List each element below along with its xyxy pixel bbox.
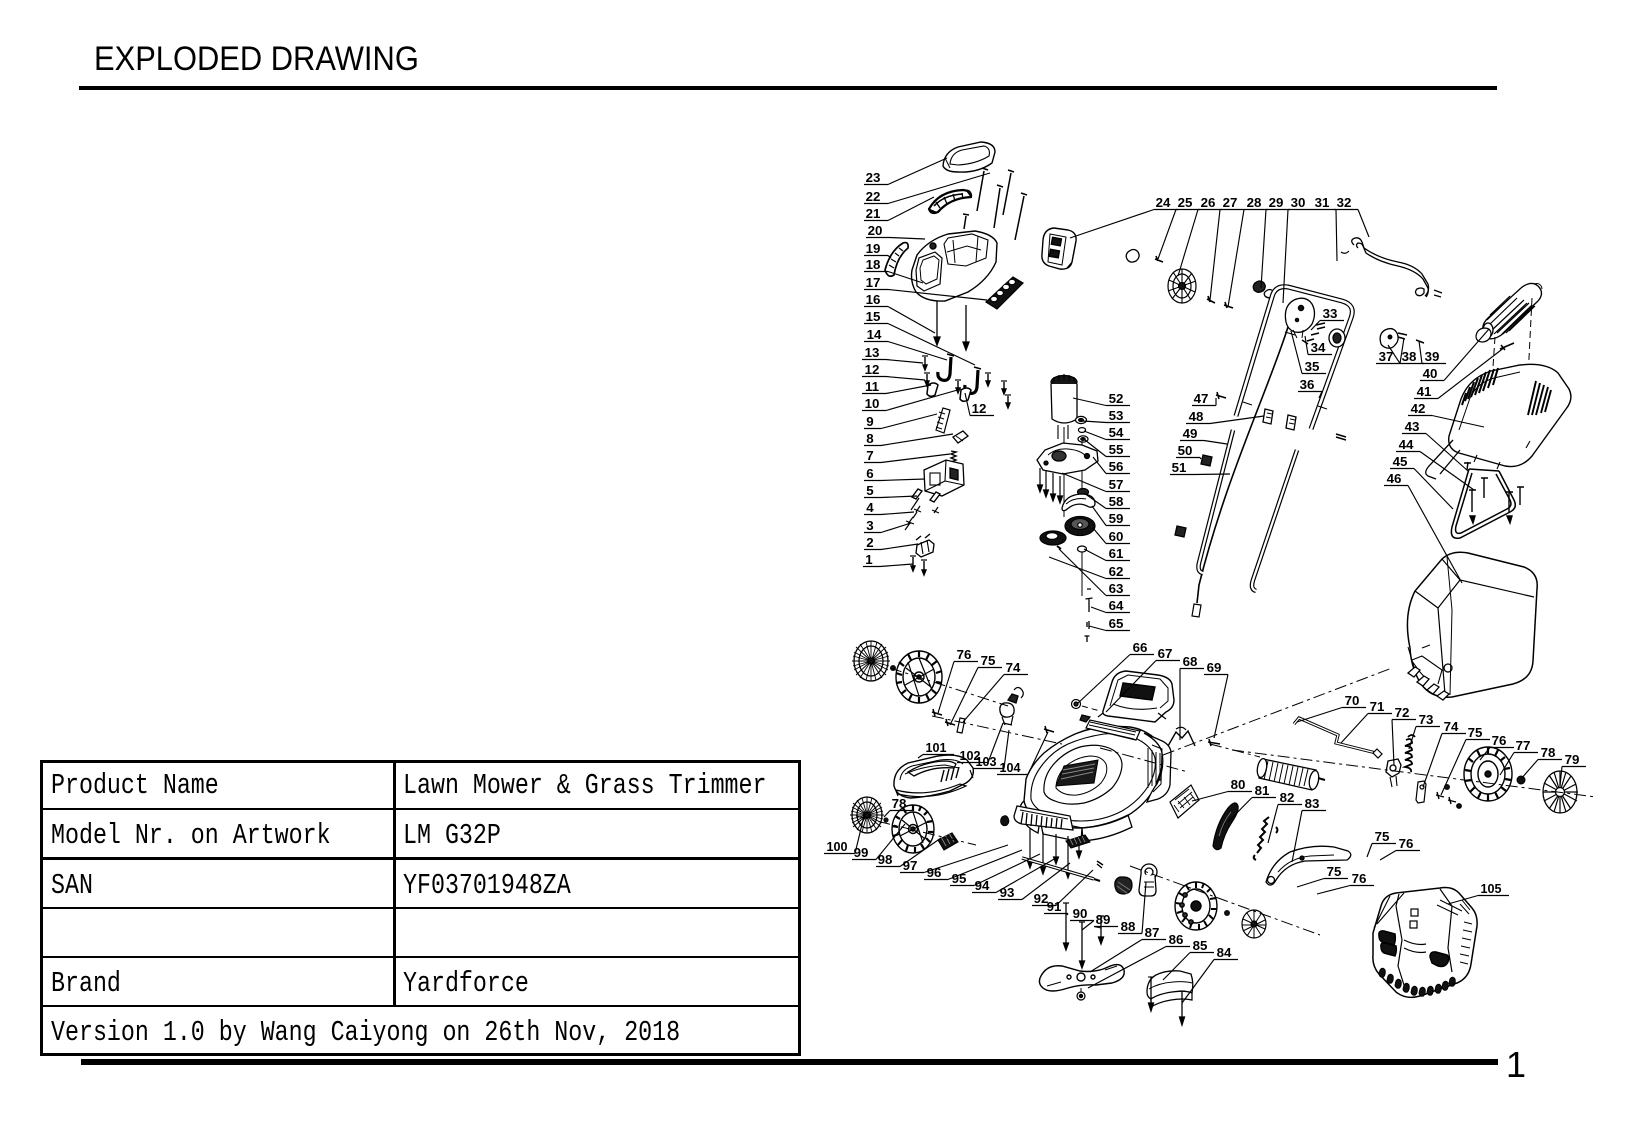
svg-text:64: 64 xyxy=(1109,598,1124,613)
svg-text:95: 95 xyxy=(952,871,967,886)
svg-text:78: 78 xyxy=(1541,745,1556,760)
svg-text:90: 90 xyxy=(1073,906,1088,921)
svg-text:5: 5 xyxy=(866,483,874,498)
svg-text:89: 89 xyxy=(1096,912,1111,927)
svg-text:76: 76 xyxy=(1492,733,1507,748)
svg-text:4: 4 xyxy=(866,500,874,515)
svg-text:39: 39 xyxy=(1425,349,1440,364)
svg-text:69: 69 xyxy=(1207,660,1222,675)
svg-text:41: 41 xyxy=(1417,384,1432,399)
svg-text:35: 35 xyxy=(1305,359,1320,374)
svg-text:56: 56 xyxy=(1109,459,1124,474)
svg-text:83: 83 xyxy=(1305,796,1320,811)
svg-text:62: 62 xyxy=(1109,564,1124,579)
svg-text:33: 33 xyxy=(1323,306,1338,321)
svg-text:60: 60 xyxy=(1109,529,1124,544)
svg-text:38: 38 xyxy=(1402,349,1417,364)
svg-text:96: 96 xyxy=(927,865,942,880)
svg-text:82: 82 xyxy=(1280,790,1295,805)
svg-text:80: 80 xyxy=(1231,777,1246,792)
svg-text:76: 76 xyxy=(1352,871,1367,886)
svg-text:105: 105 xyxy=(1481,881,1503,896)
svg-text:71: 71 xyxy=(1370,699,1385,714)
svg-text:13: 13 xyxy=(865,345,880,360)
svg-text:52: 52 xyxy=(1109,391,1124,406)
svg-text:19: 19 xyxy=(866,241,881,256)
svg-text:44: 44 xyxy=(1399,437,1414,452)
svg-text:75: 75 xyxy=(1327,864,1342,879)
svg-text:68: 68 xyxy=(1183,654,1198,669)
svg-text:84: 84 xyxy=(1217,945,1232,960)
svg-text:97: 97 xyxy=(903,858,918,873)
svg-text:76: 76 xyxy=(1399,836,1414,851)
svg-text:2: 2 xyxy=(866,535,873,550)
svg-text:73: 73 xyxy=(1419,712,1434,727)
svg-text:100: 100 xyxy=(827,839,848,854)
svg-text:48: 48 xyxy=(1189,409,1204,424)
svg-text:47: 47 xyxy=(1194,391,1209,406)
svg-text:10: 10 xyxy=(865,396,880,411)
svg-text:75: 75 xyxy=(1468,725,1483,740)
svg-text:57: 57 xyxy=(1109,477,1124,492)
svg-text:63: 63 xyxy=(1109,581,1124,596)
svg-text:86: 86 xyxy=(1169,932,1184,947)
svg-text:36: 36 xyxy=(1300,377,1315,392)
svg-text:8: 8 xyxy=(866,431,873,446)
svg-text:1: 1 xyxy=(865,552,873,567)
svg-text:20: 20 xyxy=(868,223,883,238)
svg-text:59: 59 xyxy=(1109,511,1124,526)
svg-text:21: 21 xyxy=(866,206,881,221)
svg-text:40: 40 xyxy=(1423,366,1438,381)
svg-text:75: 75 xyxy=(1375,829,1390,844)
svg-text:67: 67 xyxy=(1158,646,1173,661)
svg-text:3: 3 xyxy=(866,518,873,533)
svg-text:23: 23 xyxy=(866,170,881,185)
svg-text:55: 55 xyxy=(1109,442,1124,457)
svg-text:58: 58 xyxy=(1109,494,1124,509)
svg-text:65: 65 xyxy=(1109,616,1124,631)
svg-text:88: 88 xyxy=(1121,919,1136,934)
svg-text:27: 27 xyxy=(1223,195,1238,210)
svg-text:29: 29 xyxy=(1269,195,1284,210)
svg-text:6: 6 xyxy=(866,466,873,481)
svg-text:12: 12 xyxy=(972,401,987,416)
svg-text:7: 7 xyxy=(866,448,873,463)
svg-text:31: 31 xyxy=(1315,195,1330,210)
svg-text:74: 74 xyxy=(1444,719,1459,734)
svg-text:93: 93 xyxy=(1000,885,1015,900)
svg-text:54: 54 xyxy=(1109,425,1124,440)
svg-text:50: 50 xyxy=(1178,443,1193,458)
svg-text:75: 75 xyxy=(981,653,996,668)
svg-text:99: 99 xyxy=(854,845,869,860)
svg-text:30: 30 xyxy=(1291,195,1306,210)
svg-text:28: 28 xyxy=(1247,195,1262,210)
svg-text:70: 70 xyxy=(1345,693,1360,708)
svg-text:11: 11 xyxy=(865,379,880,394)
svg-text:34: 34 xyxy=(1311,340,1326,355)
svg-text:91: 91 xyxy=(1047,899,1062,914)
svg-text:77: 77 xyxy=(1516,738,1531,753)
svg-text:15: 15 xyxy=(866,309,881,324)
svg-text:49: 49 xyxy=(1183,426,1198,441)
svg-text:14: 14 xyxy=(867,327,882,342)
svg-text:9: 9 xyxy=(866,414,873,429)
svg-text:85: 85 xyxy=(1193,938,1208,953)
svg-text:104: 104 xyxy=(1000,760,1022,775)
svg-text:66: 66 xyxy=(1133,640,1148,655)
svg-text:53: 53 xyxy=(1109,408,1124,423)
svg-text:101: 101 xyxy=(926,740,948,755)
svg-text:81: 81 xyxy=(1255,783,1270,798)
svg-text:22: 22 xyxy=(866,189,881,204)
svg-text:12: 12 xyxy=(865,362,880,377)
svg-text:72: 72 xyxy=(1395,705,1410,720)
svg-text:46: 46 xyxy=(1387,471,1402,486)
svg-text:32: 32 xyxy=(1337,195,1352,210)
svg-text:26: 26 xyxy=(1201,195,1216,210)
svg-text:98: 98 xyxy=(878,852,893,867)
svg-text:51: 51 xyxy=(1172,460,1187,475)
svg-text:18: 18 xyxy=(866,257,881,272)
svg-text:37: 37 xyxy=(1379,349,1394,364)
svg-text:74: 74 xyxy=(1006,660,1021,675)
svg-text:94: 94 xyxy=(975,878,990,893)
svg-text:61: 61 xyxy=(1109,546,1124,561)
svg-text:42: 42 xyxy=(1411,401,1426,416)
svg-text:103: 103 xyxy=(976,754,997,769)
svg-text:45: 45 xyxy=(1393,454,1408,469)
svg-text:76: 76 xyxy=(957,647,972,662)
svg-text:79: 79 xyxy=(1565,752,1580,767)
svg-text:78: 78 xyxy=(892,796,907,811)
svg-text:87: 87 xyxy=(1145,925,1160,940)
svg-text:17: 17 xyxy=(866,275,881,290)
svg-text:43: 43 xyxy=(1405,419,1420,434)
svg-text:16: 16 xyxy=(866,292,881,307)
svg-text:24: 24 xyxy=(1156,195,1171,210)
svg-text:25: 25 xyxy=(1178,195,1193,210)
